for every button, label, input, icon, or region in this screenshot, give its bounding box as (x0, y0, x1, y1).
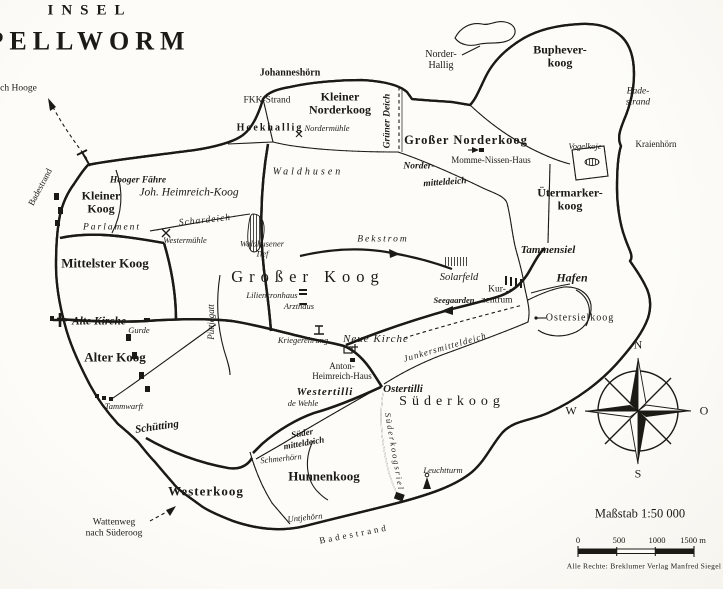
label-title-insel: INSEL (47, 3, 132, 20)
label-hafen: Hafen (556, 271, 587, 284)
label-anton-heimreich-haus: Anton-Heimreich-Haus (312, 361, 371, 381)
label-westertilli: Westertilli (297, 386, 354, 398)
label-alter-koog: Alter Koog (84, 351, 146, 366)
label-uetermarker-koog: Ütermarker-koog (537, 187, 603, 214)
compass-west-label: W (565, 404, 576, 419)
kriegerehrung-monument-icon (314, 326, 324, 334)
scale-tick-1500: 1500 m (680, 535, 706, 545)
label-bekstrom: Bekstrom (357, 235, 409, 246)
ferry-pier-icon (77, 150, 90, 166)
momme-nissen-haus-icon (479, 148, 484, 152)
scale-tick-500: 500 (613, 535, 626, 545)
sluice-icon (394, 492, 405, 502)
label-tammensiel: Tammensiel (521, 244, 576, 256)
compass-rose-icon (585, 358, 691, 464)
label-leuchtturm: Leuchtturm (423, 466, 462, 476)
label-bade-strand: Bade-strand (626, 86, 650, 107)
label-kraienhoern: Kraienhörn (636, 139, 677, 149)
label-kleiner-norderkoog: KleinerNorderkoog (309, 91, 371, 118)
label-ostersielkoog: Ostersielkoog (546, 312, 615, 323)
wattenweg-arrow-icon (166, 506, 176, 516)
scale-caption: Maßstab 1:50 000 (595, 507, 685, 522)
label-fkk-strand: FKK-Strand (244, 96, 291, 107)
seegaarden-arrow-icon (441, 306, 453, 315)
label-kur-zentrum: Kur-zentrum (481, 284, 512, 305)
scale-bar (578, 546, 694, 557)
label-arzthaus: Arzthaus (284, 302, 314, 312)
route-to-hooge (50, 101, 88, 160)
label-kriegerehrung: Kriegerehrung (278, 336, 328, 346)
label-liliencronhaus: Liliencronhaus (246, 291, 297, 301)
gurde-building-icon (144, 318, 150, 322)
label-momme-nissen-haus: Momme-Nissen-Haus (451, 155, 531, 165)
label-gruener-deich: Grüner Deich (383, 94, 394, 149)
label-solarfeld: Solarfeld (440, 272, 479, 284)
puettjegatt-channel (218, 275, 230, 375)
bekstrom-arrow-icon (389, 249, 400, 258)
vogelkoje-pond-icon (585, 159, 599, 166)
label-puettjegatt: Püttjegatt (206, 304, 216, 340)
label-parlament: Parlament (83, 223, 141, 234)
label-kleiner-koog: KleinerKoog (82, 190, 121, 217)
label-title-pellworm: PELLWORM (0, 26, 191, 55)
label-waldhusen: Waldhusen (273, 166, 344, 177)
map-artwork (0, 0, 723, 589)
label-norder-hallig: Norder-Hallig (425, 49, 456, 71)
scale-tick-1000: 1000 (649, 535, 666, 545)
map-page: INSELPELLWORMnach HoogeJohanneshörnFKK-S… (0, 0, 723, 589)
label-hooger-faehre: Hooger Fähre (110, 176, 166, 187)
label-nordermuehle: Nordermühle (304, 124, 349, 134)
scale-tick-0: 0 (576, 535, 580, 545)
label-joh-heimreich-koog: Joh. Heimreich-Koog (139, 187, 238, 200)
label-mittelster-koog: Mittelster Koog (61, 257, 148, 272)
compass-south-label: S (635, 467, 642, 482)
credit-line: Alle Rechte: Breklumer Verlag Manfred Si… (567, 562, 721, 571)
ostersielkoog-dot (534, 316, 537, 319)
label-de-wehle: de Wehle (288, 399, 319, 409)
label-suederkoog: Süderkoog (399, 394, 505, 410)
label-grosser-koog: Großer Koog (231, 268, 385, 286)
label-hunnenkoog: Hunnenkoog (288, 470, 360, 485)
label-nach-hooge: nach Hooge (0, 84, 37, 95)
norder-hallig-leader (462, 46, 480, 55)
label-westerkoog: Westerkoog (168, 485, 244, 500)
label-johanneshoern: Johanneshörn (260, 67, 321, 78)
label-buphever-koog: Buphever-koog (533, 44, 587, 71)
label-alte-kirche: Alte Kirche (72, 316, 126, 329)
label-neue-kirche: Neue Kirche (343, 333, 409, 345)
norder-hallig-islet (455, 22, 515, 46)
hooge-arrow-icon (48, 98, 56, 111)
compass-north-label: N (634, 338, 643, 353)
label-westermuehle: Westermühle (163, 236, 207, 246)
label-seegaarden: Seegaarden (433, 296, 474, 306)
label-tammwarft: Tammwarft (105, 402, 143, 412)
label-hoekhallig: Hoekhallig (237, 122, 304, 133)
label-norder-mitteldeich-1: Norder- (403, 162, 434, 173)
label-vogelkoje: Vogelkoje (568, 142, 601, 152)
liliencronhaus-icon (299, 289, 307, 295)
boundary-dashed (404, 305, 523, 338)
label-gurde: Gurde (128, 326, 149, 336)
label-grosser-norderkoog: Großer Norderkoog (404, 133, 528, 147)
inner-dikes (150, 87, 608, 524)
solarfeld-icon (443, 257, 468, 266)
compass-east-label: O (700, 404, 709, 419)
map-symbols (50, 131, 599, 501)
label-waldhusener-tief: WaldhusenerTief (240, 239, 284, 258)
label-wattenweg-nach-suederoog: Wattenwegnach Süderoog (86, 517, 143, 538)
roads (57, 144, 589, 500)
momme-arrow-icon (472, 147, 479, 153)
